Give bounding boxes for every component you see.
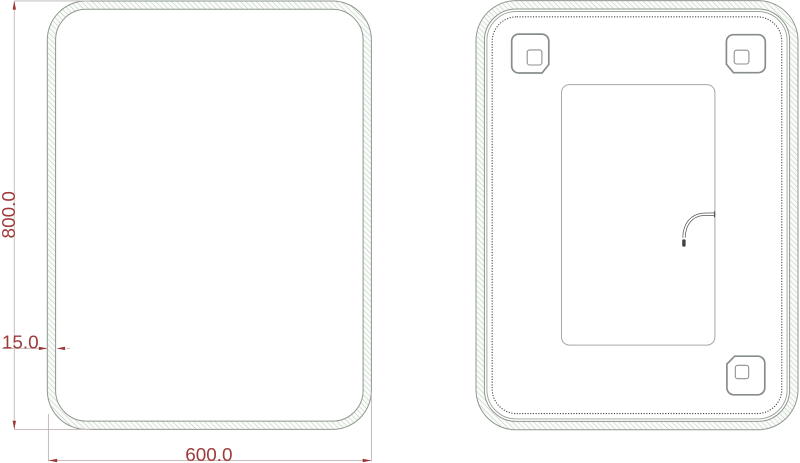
- svg-text:15.0: 15.0: [2, 333, 39, 354]
- svg-text:800.0: 800.0: [0, 191, 20, 238]
- svg-text:600.0: 600.0: [185, 445, 232, 463]
